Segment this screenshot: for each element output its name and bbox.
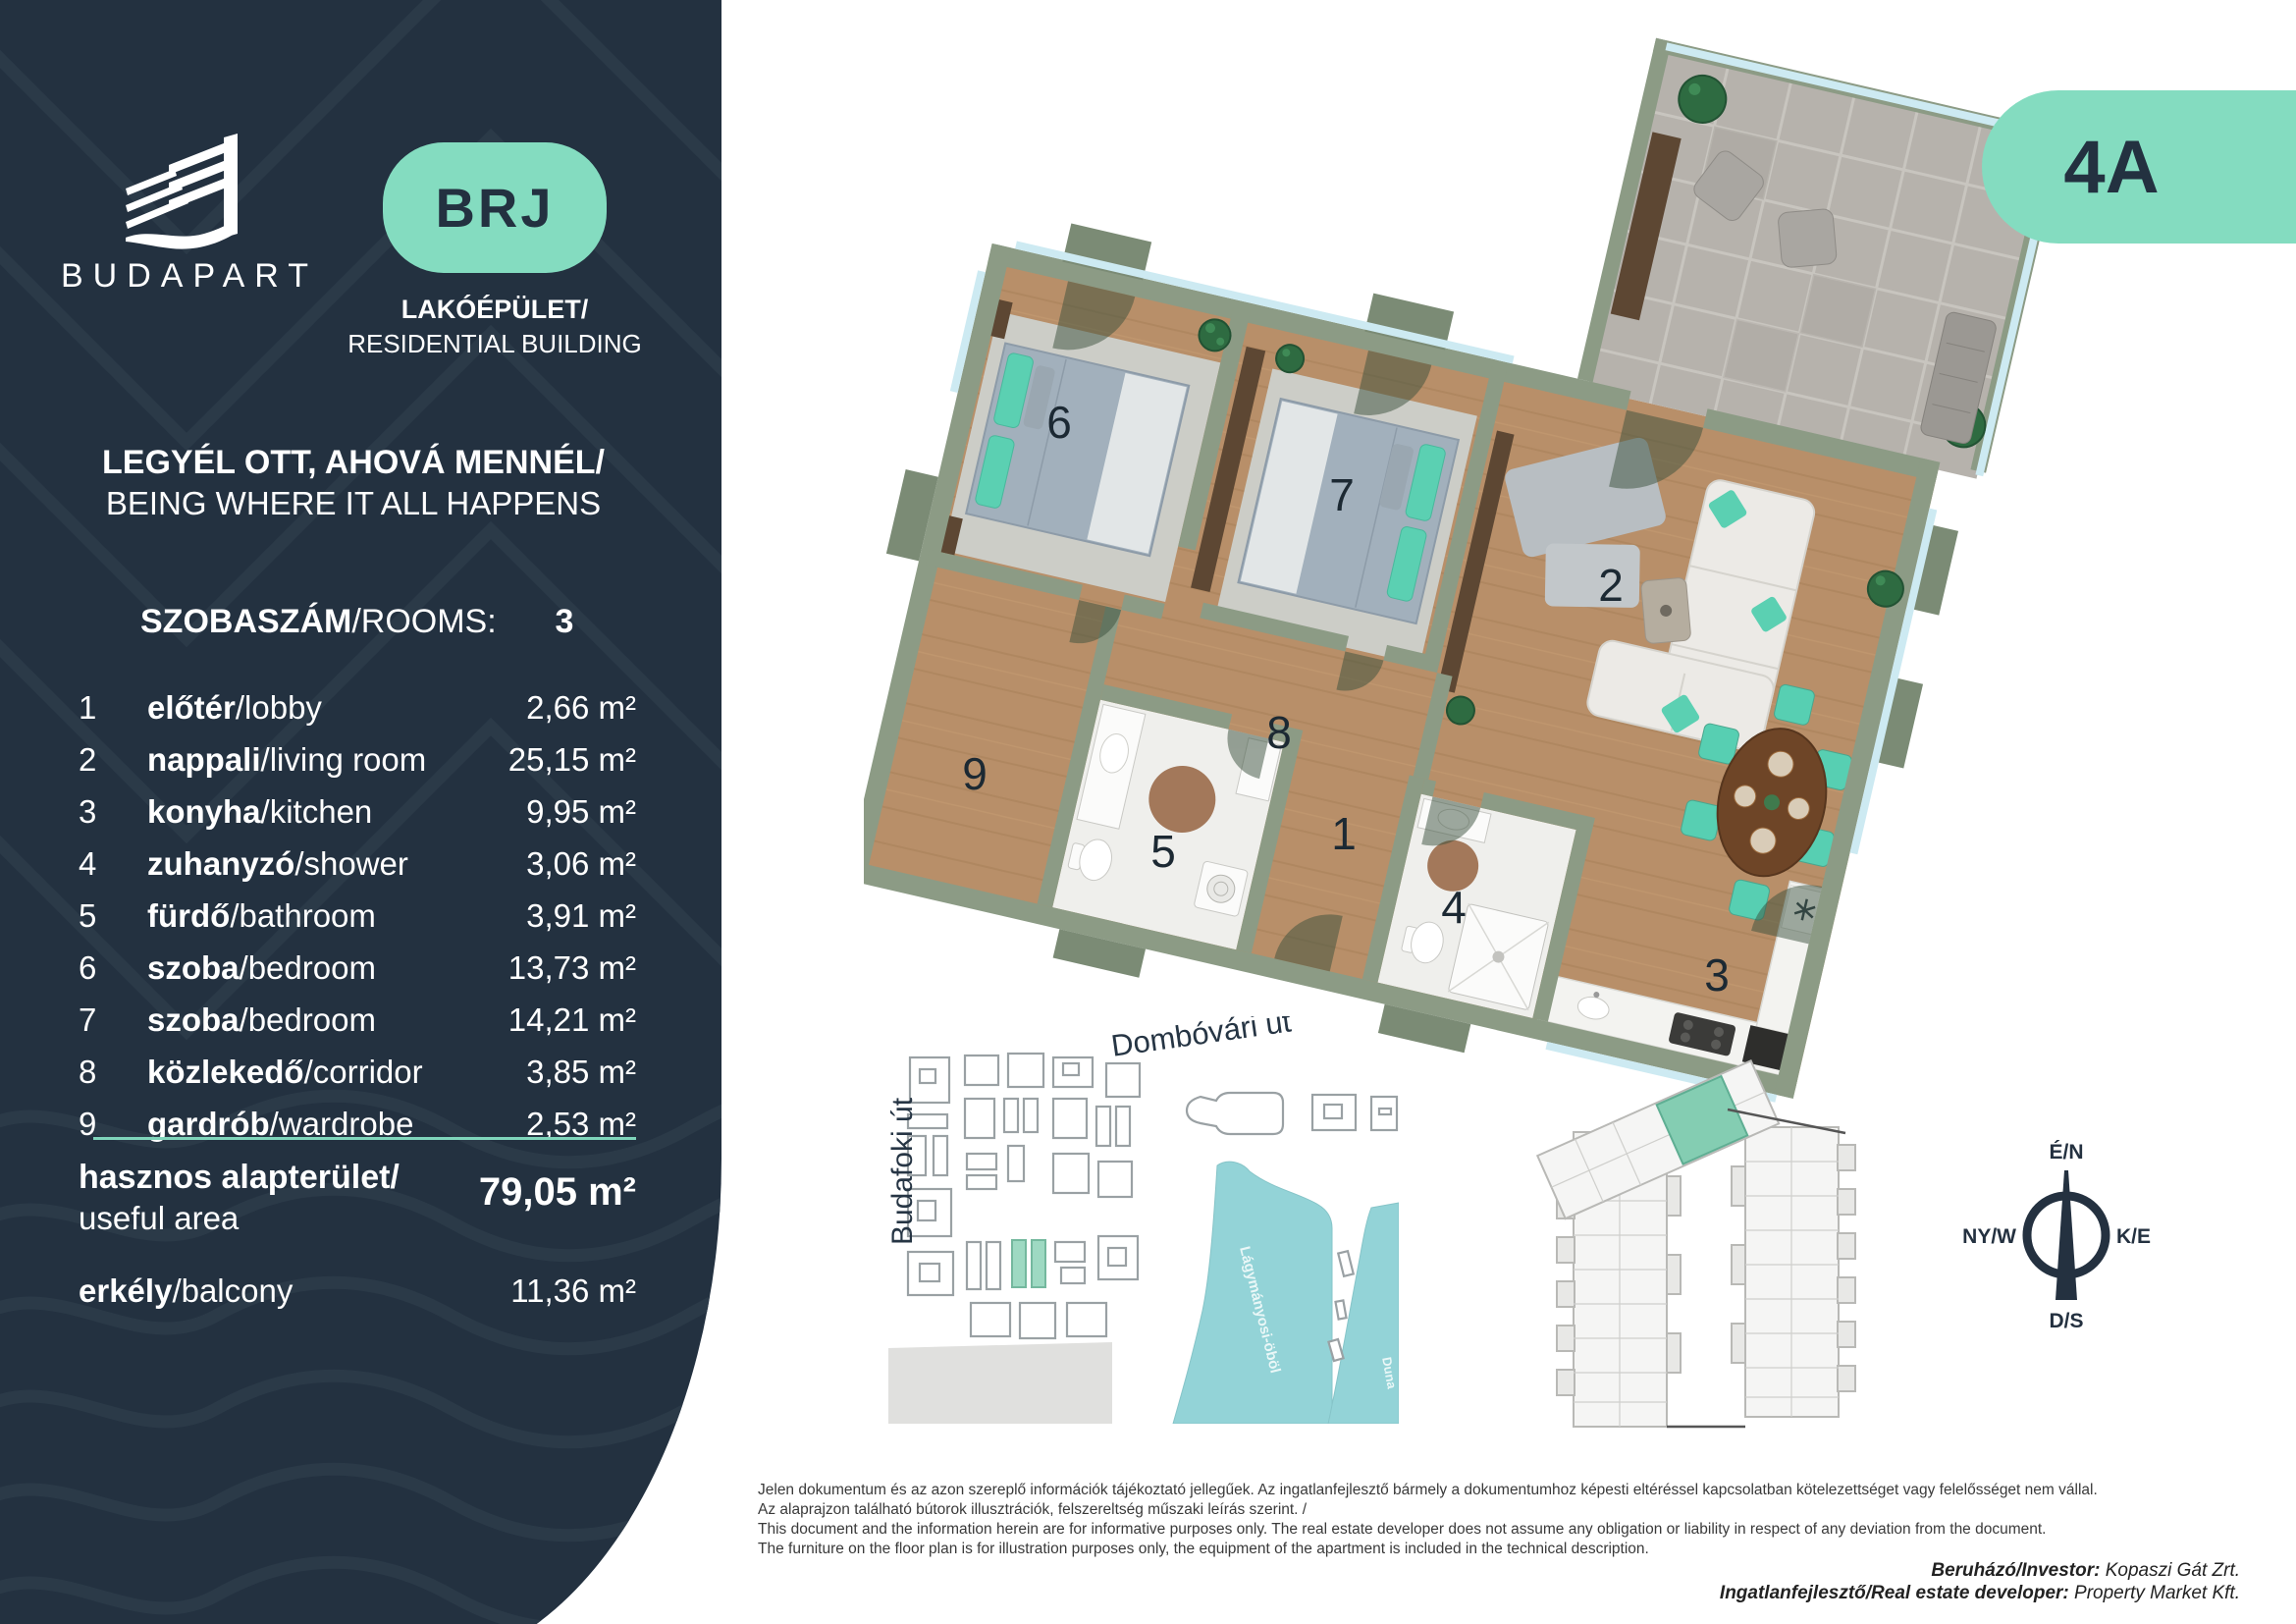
useful-area-block: hasznos alapterület/ useful area 79,05 m… <box>79 1157 636 1239</box>
disclaimer-line-4: The furniture on the floor plan is for i… <box>758 1540 2250 1559</box>
apartment-code-badge: 4A <box>1982 90 2296 244</box>
map-highlighted-buildings <box>1012 1240 1045 1287</box>
totals-divider <box>93 1137 636 1140</box>
room-row-9: 9gardrób/wardrobe2,53 m² <box>79 1098 636 1150</box>
compass-north-label: É/N <box>2049 1141 2083 1164</box>
rooms-count-line: SZOBASZÁM/ROOMS: 3 <box>140 603 651 641</box>
budapart-logo-icon <box>118 128 260 250</box>
room-row-3: 3konyha/kitchen9,95 m² <box>79 785 636 838</box>
tagline-hu: LEGYÉL OTT, AHOVÁ MENNÉL/ <box>59 442 648 483</box>
balcony-block: erkély/balcony 11,36 m² <box>79 1272 636 1310</box>
building-key-plan <box>1520 1058 1922 1441</box>
map-street-top-label: Dombóvári út <box>1109 1016 1294 1063</box>
sidebar: BUDAPART BRJ LAKÓÉPÜLET/ RESIDENTIAL BUI… <box>0 0 721 1624</box>
room-label-9: 9 <box>962 748 988 799</box>
rooms-label-en: /ROOMS: <box>351 603 496 640</box>
room-row-1: 1előtér/lobby2,66 m² <box>79 681 636 733</box>
building-type: LAKÓÉPÜLET/ RESIDENTIAL BUILDING <box>347 293 642 361</box>
compass-west-label: NY/W <box>1963 1225 2016 1248</box>
building-type-hu: LAKÓÉPÜLET/ <box>347 293 642 327</box>
credits: Beruházó/Investor: Kopaszi Gát Zrt. Inga… <box>1669 1559 2240 1604</box>
room-row-7: 7szoba/bedroom14,21 m² <box>79 994 636 1046</box>
building-type-en: RESIDENTIAL BUILDING <box>347 327 642 361</box>
room-label-4: 4 <box>1441 882 1467 933</box>
compass-south-label: D/S <box>2049 1310 2083 1332</box>
balcony-value: 11,36 m² <box>510 1272 636 1310</box>
investor-line: Beruházó/Investor: Kopaszi Gát Zrt. <box>1669 1559 2240 1582</box>
brand-wordmark: BUDAPART <box>27 257 351 296</box>
room-label-5: 5 <box>1150 826 1176 877</box>
room-row-4: 4zuhanyzó/shower3,06 m² <box>79 838 636 890</box>
map-rail-band <box>888 1342 1112 1424</box>
floorplan-3d: 1 2 3 4 5 6 7 8 9 <box>864 20 2081 1139</box>
room-label-6: 6 <box>1046 397 1072 448</box>
developer-label: Ingatlanfejlesztő/Real estate developer: <box>1720 1583 2069 1603</box>
disclaimer-text: Jelen dokumentum és az azon szereplő inf… <box>758 1481 2250 1559</box>
site-map: Dombóvári út Budafoki út Lágymányosi-öbö… <box>888 1016 1399 1424</box>
unit-code-badge: BRJ <box>383 142 607 273</box>
brochure-page: 1 2 3 4 5 6 7 8 9 <box>0 0 2296 1624</box>
room-label-7: 7 <box>1329 469 1355 520</box>
map-street-left-label: Budafoki út <box>888 1097 919 1245</box>
room-row-8: 8közlekedő/corridor3,85 m² <box>79 1046 636 1098</box>
disclaimer-line-1: Jelen dokumentum és az azon szereplő inf… <box>758 1481 2250 1500</box>
compass-east-label: K/E <box>2116 1225 2151 1248</box>
disclaimer-line-2: Az alaprajzon található bútorok illusztr… <box>758 1500 2250 1520</box>
room-label-3: 3 <box>1704 949 1730 1001</box>
disclaimer-line-3: This document and the information herein… <box>758 1520 2250 1540</box>
tagline-en: BEING WHERE IT ALL HAPPENS <box>59 483 648 524</box>
room-label-8: 8 <box>1266 707 1292 758</box>
compass-needle-icon <box>2056 1170 2077 1300</box>
room-label-1: 1 <box>1331 808 1357 859</box>
investor-value: Kopaszi Gát Zrt. <box>2100 1560 2240 1581</box>
compass: É/N NY/W K/E D/S <box>1963 1129 2179 1375</box>
balcony-hu: erkély <box>79 1272 172 1309</box>
tagline: LEGYÉL OTT, AHOVÁ MENNÉL/ BEING WHERE IT… <box>59 442 648 524</box>
room-row-6: 6szoba/bedroom13,73 m² <box>79 942 636 994</box>
investor-label: Beruházó/Investor: <box>1931 1560 2100 1581</box>
room-row-5: 5fürdő/bathroom3,91 m² <box>79 890 636 942</box>
developer-line: Ingatlanfejlesztő/Real estate developer:… <box>1669 1582 2240 1604</box>
useful-area-value: 79,05 m² <box>479 1170 636 1215</box>
room-list: 1előtér/lobby2,66 m² 2nappali/living roo… <box>79 681 636 1150</box>
rooms-label-hu: SZOBASZÁM <box>140 603 351 640</box>
developer-value: Property Market Kft. <box>2069 1583 2240 1603</box>
balcony-en: /balcony <box>172 1272 293 1309</box>
rooms-count-value: 3 <box>535 603 594 641</box>
room-label-2: 2 <box>1598 560 1624 611</box>
room-row-2: 2nappali/living room25,15 m² <box>79 733 636 785</box>
